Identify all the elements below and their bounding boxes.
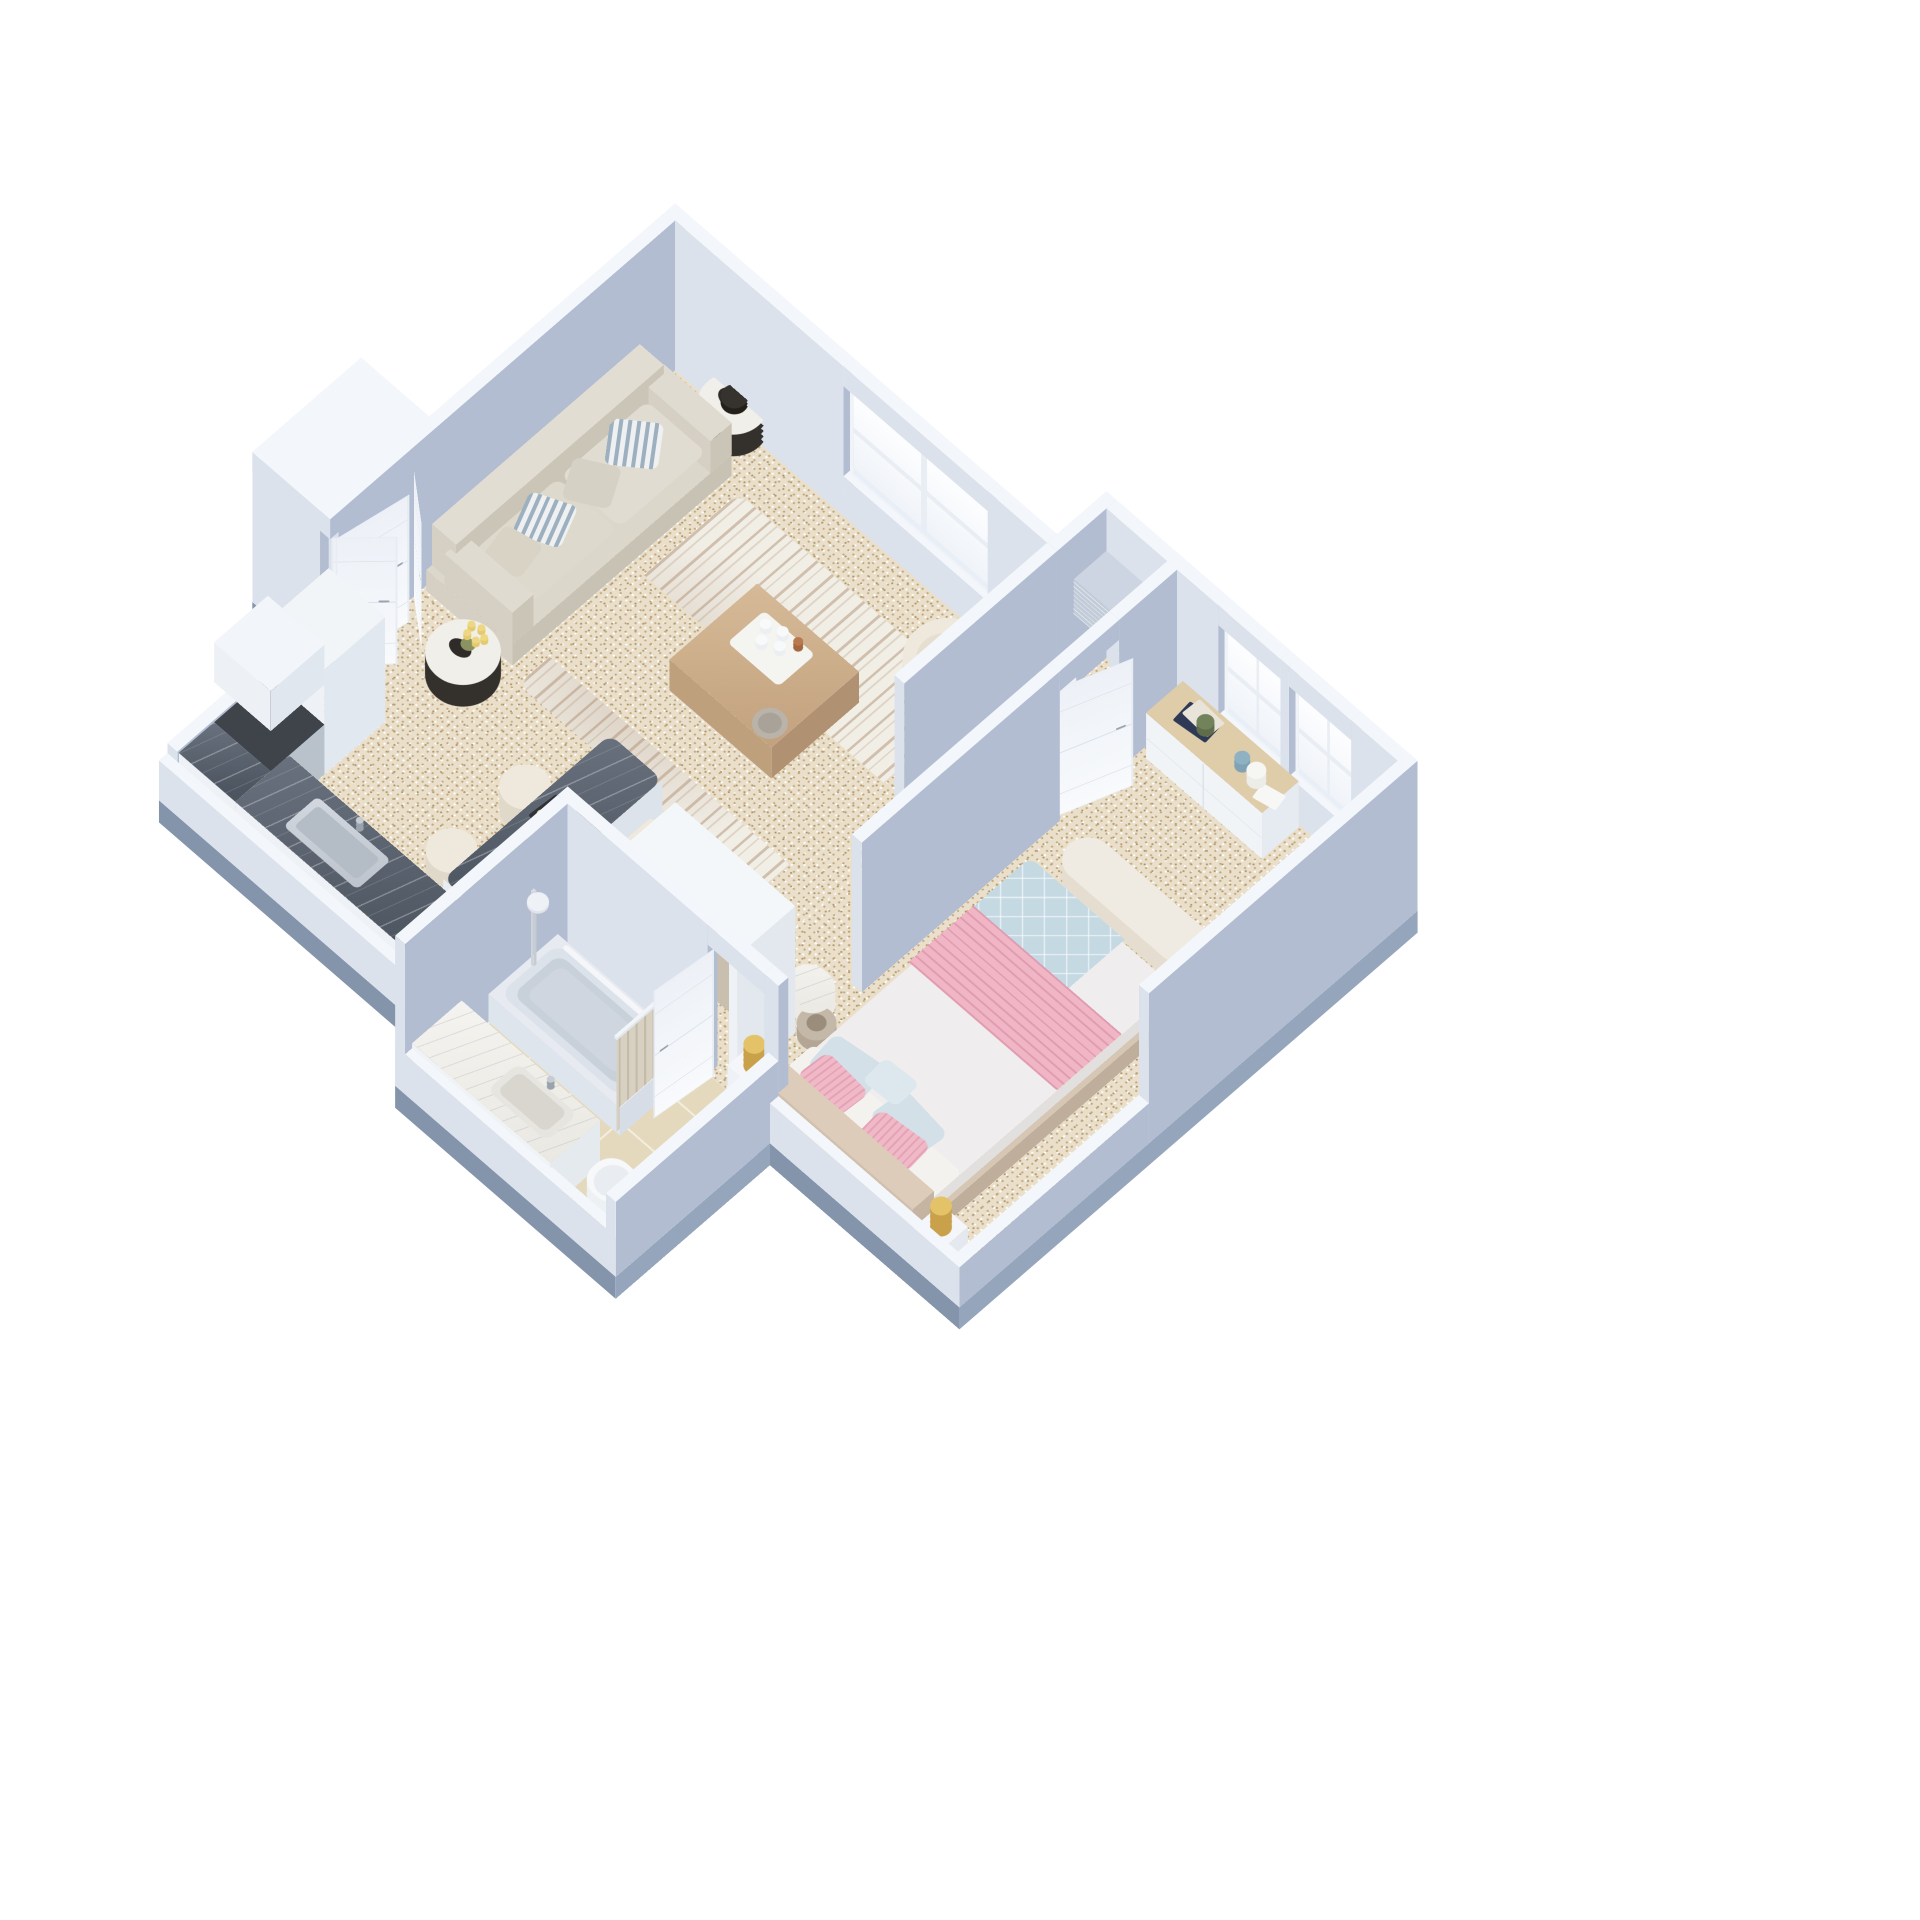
wall-partition-hall-face-s: [852, 834, 862, 993]
sofa-pillow-striped-1: [604, 418, 664, 470]
wall-bathroom-east-face-s: [606, 1193, 616, 1277]
bedroom-door-handle: [1116, 724, 1126, 730]
closet-door-right-handle: [378, 600, 389, 602]
closet-door-left-handle: [419, 571, 420, 582]
wall-bedroom-south-low-face-e: [959, 1260, 967, 1307]
bathroom-door-handle: [660, 1044, 669, 1052]
canvas-background: [0, 0, 1920, 1920]
